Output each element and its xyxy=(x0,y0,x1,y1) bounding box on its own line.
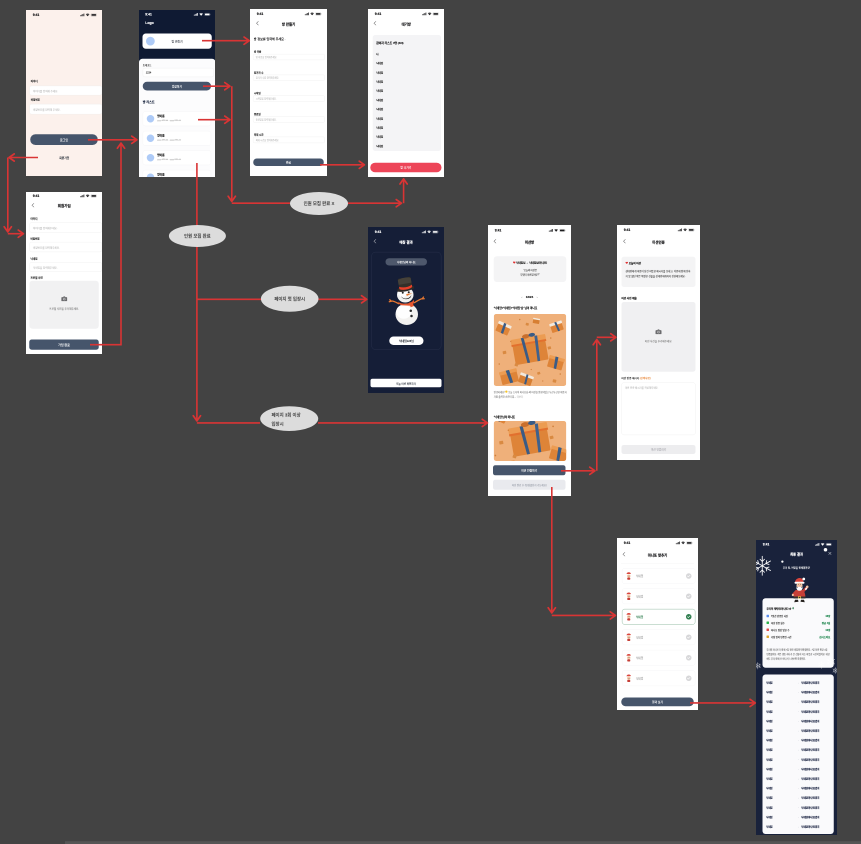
svg-text:입장시: 입장시 xyxy=(272,421,284,428)
svg-text:페이지 3회 이상: 페이지 3회 이상 xyxy=(272,412,301,419)
svg-text:페이지 첫 입장시: 페이지 첫 입장시 xyxy=(274,295,305,302)
svg-text:인원 모집 완료: 인원 모집 완료 xyxy=(184,233,211,240)
svg-text:인원 모집 완료 X: 인원 모집 완료 X xyxy=(304,200,335,207)
